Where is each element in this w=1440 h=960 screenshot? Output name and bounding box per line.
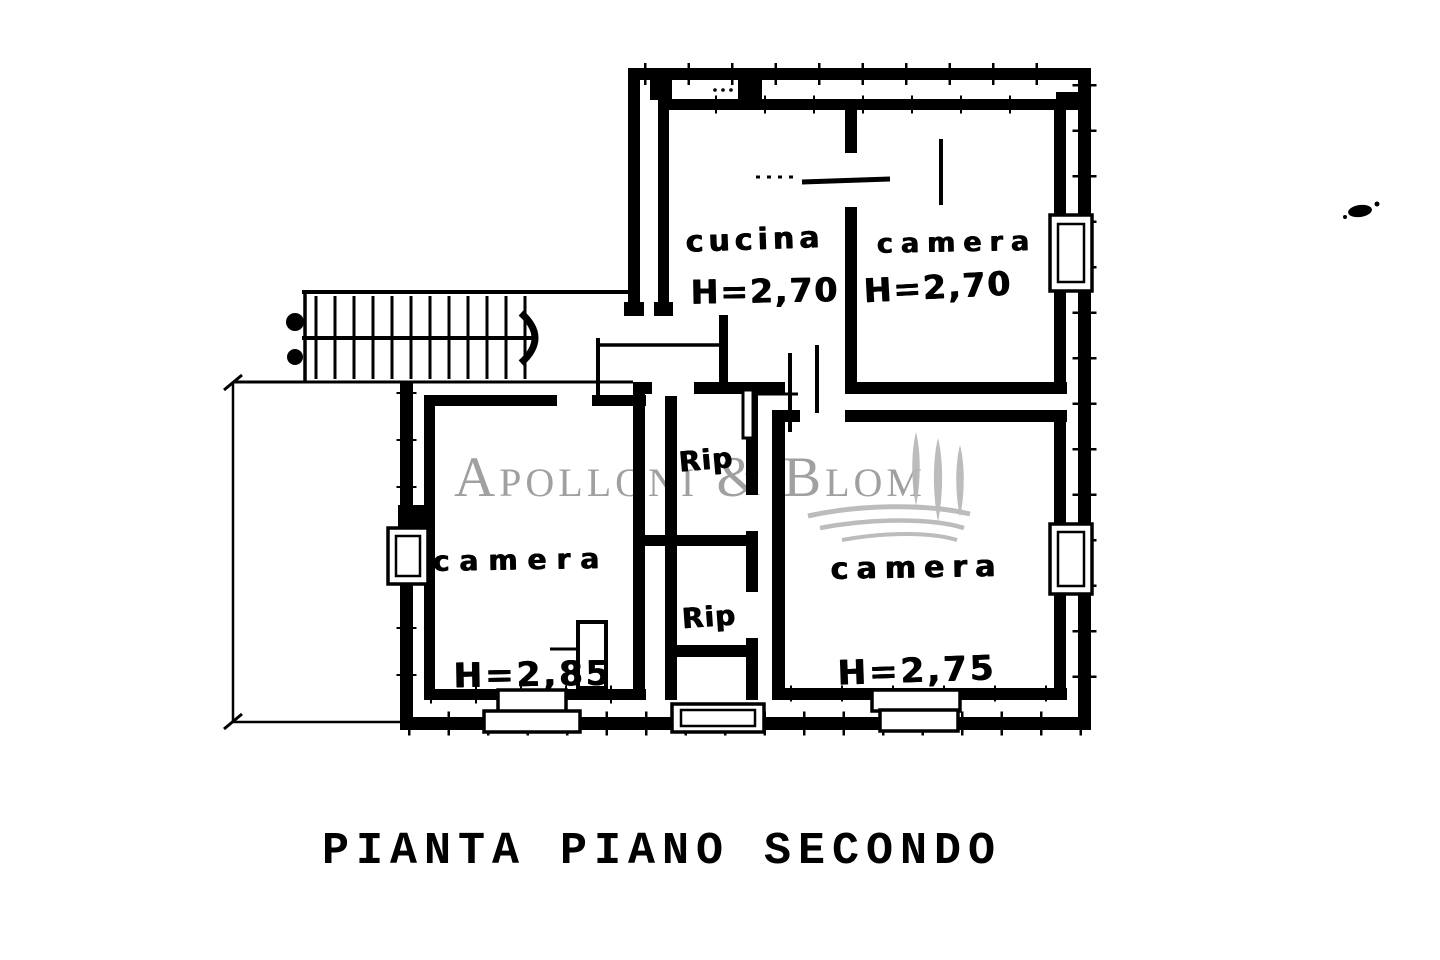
wall-vestibule [719,315,728,383]
wall-rip-divider [643,535,758,546]
window-left [388,528,428,584]
window-right-upper [1050,215,1092,291]
plan-title: PIANTA PIANO SECONDO [0,826,1324,877]
wall-mid-horizontal [635,382,1067,394]
wall-outer-top [628,68,1090,80]
room-label-camera-nord: camera [877,226,1038,260]
room-height-camera-ovest: H=2,85 [453,654,613,697]
floor-plan-page: Apolloni & Blom [0,0,1440,960]
wall-outer-left-upper [628,68,640,316]
watermark-logo-cypress-icon [808,432,970,540]
staircase [286,292,628,381]
window-bottom-center [672,704,764,732]
stair-start-marks [286,313,304,365]
door-jamb-vestibule [743,390,753,438]
wall-inner-top [658,99,1062,110]
room-label-cucina: cucina [685,220,825,260]
window-bottom-left [484,690,580,732]
room-label-camera-ovest: camera [433,542,610,578]
window-bottom-right [872,690,960,731]
wall-kitchen-left [658,99,669,316]
door-vestibule [652,380,694,396]
room-height-camera-est: H=2,75 [837,648,997,694]
room-label-rip-1: Rip [678,441,735,479]
wall-kitchen-camera-divider [845,110,857,385]
room-label-camera-est: camera [830,549,1003,587]
door-camera-ovest [557,393,592,408]
door-rip1 [745,495,760,531]
door-rip2 [745,592,760,638]
door-swing-kitchen-camera [802,179,890,182]
room-label-rip-2: Rip [681,599,737,636]
ink-blot [1343,202,1380,220]
floor-plan-drawing [0,0,1440,960]
wall-camera-est-left [772,410,785,700]
room-height-cucina: H=2,70 [690,270,839,312]
wall-rip2-bottom [665,645,758,657]
wall-camera-ovest-top [424,395,646,406]
window-right-lower [1050,524,1092,594]
wall-pier [398,505,426,529]
door-camera-est [800,408,845,424]
room-height-camera-nord: H=2,70 [863,264,1014,311]
